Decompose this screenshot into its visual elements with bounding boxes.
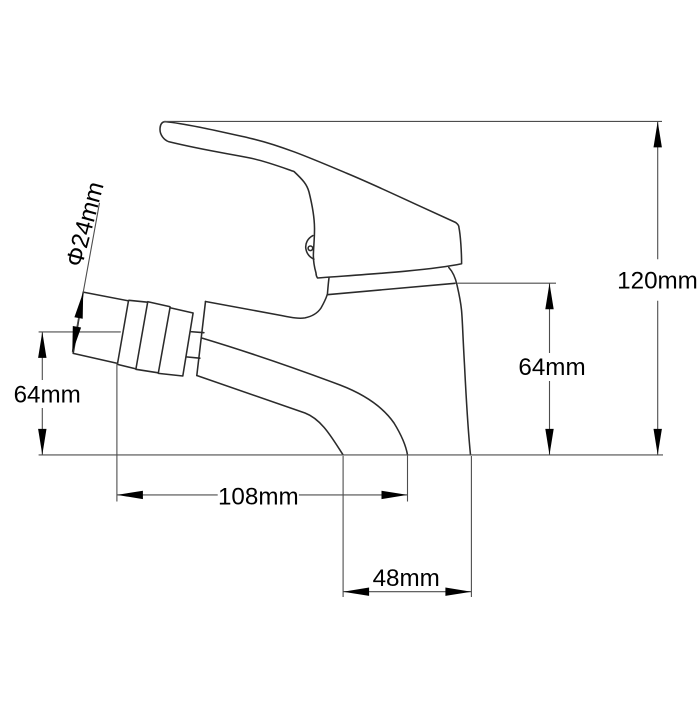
- svg-text:108mm: 108mm: [218, 483, 299, 510]
- svg-text:64mm: 64mm: [14, 382, 81, 409]
- svg-text:64mm: 64mm: [518, 354, 585, 381]
- svg-text:120mm: 120mm: [617, 267, 698, 294]
- svg-text:48mm: 48mm: [373, 565, 440, 592]
